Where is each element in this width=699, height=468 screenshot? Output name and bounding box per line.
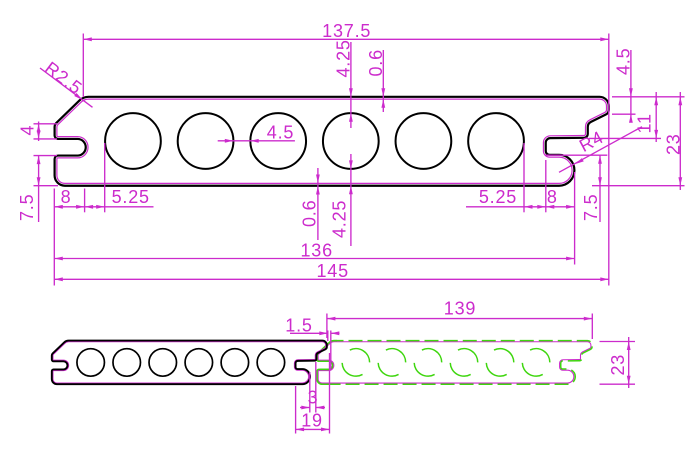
- svg-text:4.5: 4.5: [614, 48, 634, 75]
- svg-text:4: 4: [18, 125, 38, 136]
- svg-text:5.25: 5.25: [479, 187, 517, 207]
- svg-text:8: 8: [547, 187, 558, 207]
- svg-text:0.6: 0.6: [366, 49, 386, 76]
- svg-text:145: 145: [316, 261, 348, 281]
- svg-text:19: 19: [301, 411, 323, 431]
- svg-text:5.25: 5.25: [112, 187, 150, 207]
- svg-text:23: 23: [608, 354, 628, 376]
- svg-text:136: 136: [300, 241, 332, 261]
- svg-text:137.5: 137.5: [322, 21, 371, 41]
- svg-text:4.25: 4.25: [330, 200, 350, 238]
- svg-text:7.5: 7.5: [17, 194, 37, 221]
- svg-text:4.25: 4.25: [334, 39, 354, 77]
- svg-text:4.5: 4.5: [267, 123, 294, 143]
- svg-text:7.5: 7.5: [581, 194, 601, 221]
- svg-text:1.5: 1.5: [285, 316, 312, 336]
- svg-text:23: 23: [664, 133, 684, 155]
- svg-text:11: 11: [635, 113, 655, 133]
- svg-text:0.6: 0.6: [300, 200, 320, 227]
- svg-text:8: 8: [61, 187, 72, 207]
- svg-text:139: 139: [444, 299, 476, 319]
- svg-text:3: 3: [308, 388, 319, 408]
